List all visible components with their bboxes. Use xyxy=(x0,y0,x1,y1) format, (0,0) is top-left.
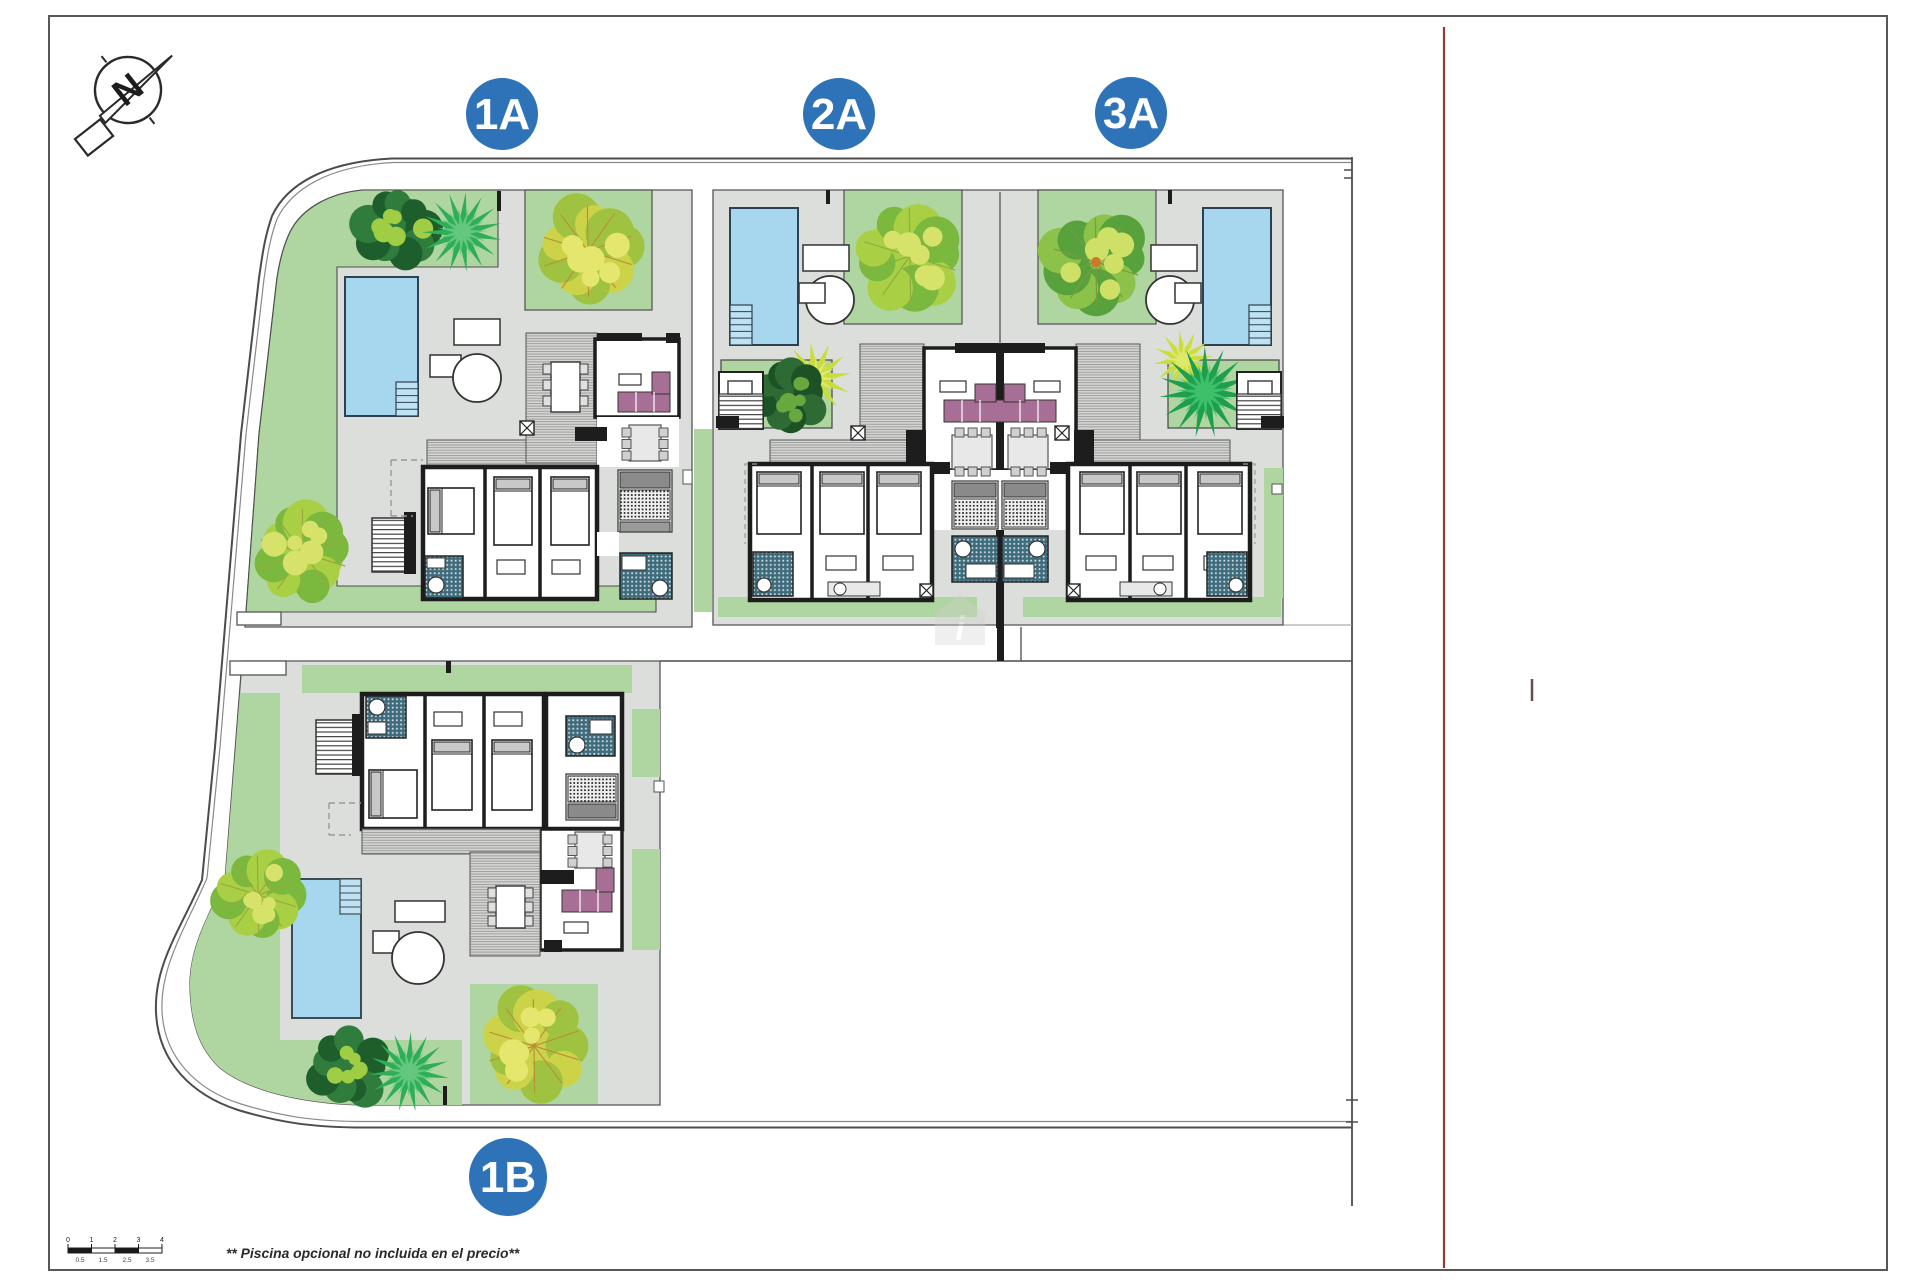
svg-text:2A: 2A xyxy=(811,90,867,139)
svg-text:1.5: 1.5 xyxy=(98,1257,107,1264)
svg-text:1B: 1B xyxy=(480,1153,536,1202)
svg-text:3A: 3A xyxy=(1103,89,1159,138)
svg-text:** Piscina opcional no incluid: ** Piscina opcional no incluida en el pr… xyxy=(226,1245,520,1261)
svg-text:i: i xyxy=(955,610,966,648)
svg-text:3: 3 xyxy=(137,1237,141,1244)
svg-text:4: 4 xyxy=(160,1237,164,1244)
svg-text:1: 1 xyxy=(90,1237,94,1244)
svg-text:1A: 1A xyxy=(474,90,530,139)
svg-text:2.5: 2.5 xyxy=(122,1257,131,1264)
svg-text:2: 2 xyxy=(113,1237,117,1244)
svg-text:3.5: 3.5 xyxy=(145,1257,154,1264)
svg-text:0.5: 0.5 xyxy=(75,1257,84,1264)
svg-text:0: 0 xyxy=(66,1237,70,1244)
